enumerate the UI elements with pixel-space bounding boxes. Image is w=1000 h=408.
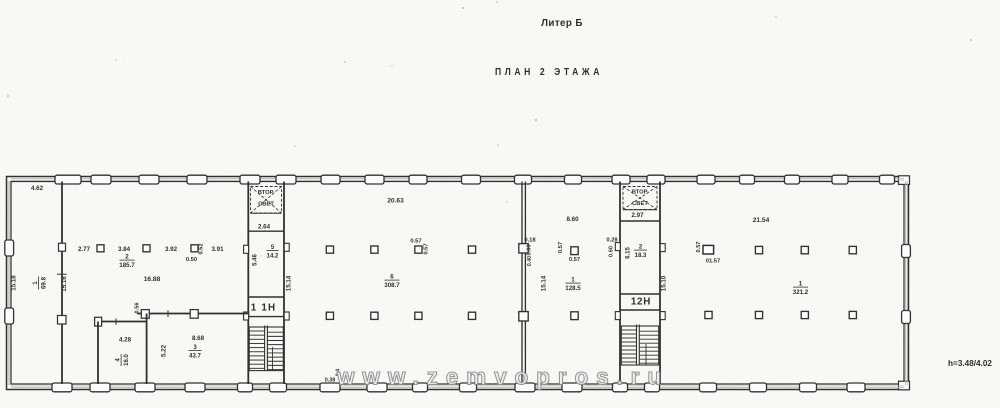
svg-text:0.57: 0.57 — [410, 239, 421, 245]
svg-text:16.88: 16.88 — [144, 276, 161, 283]
svg-text:69.8: 69.8 — [41, 276, 48, 289]
svg-text:8.68: 8.68 — [192, 335, 205, 342]
svg-text:308.7: 308.7 — [384, 282, 400, 289]
svg-text:0.56: 0.56 — [135, 303, 141, 314]
svg-text:2: 2 — [125, 254, 129, 261]
svg-text:0.50: 0.50 — [186, 257, 197, 263]
svg-text:1: 1 — [799, 281, 803, 288]
svg-text:15.16: 15.16 — [61, 276, 68, 292]
svg-text:2.64: 2.64 — [258, 224, 271, 231]
svg-text:1 1Н: 1 1Н — [251, 303, 277, 314]
svg-text:2.97: 2.97 — [631, 212, 644, 219]
svg-text:2.77: 2.77 — [78, 246, 91, 253]
svg-text:СВЕТ: СВЕТ — [258, 202, 274, 208]
svg-text:h=3.48/4.02: h=3.48/4.02 — [948, 359, 992, 368]
svg-text:www.zemvopros.ru: www.zemvopros.ru — [336, 364, 669, 390]
svg-text:15.18: 15.18 — [11, 275, 18, 291]
svg-text:0.28: 0.28 — [606, 238, 618, 244]
svg-text:4.28: 4.28 — [119, 337, 132, 344]
svg-text:ПЛАН 2 ЭТАЖА: ПЛАН 2 ЭТАЖА — [495, 67, 603, 78]
svg-text:0.18: 0.18 — [524, 238, 536, 244]
svg-text:0.57: 0.57 — [424, 243, 430, 254]
svg-text:128.5: 128.5 — [565, 285, 581, 292]
svg-text:0.52: 0.52 — [199, 243, 205, 254]
svg-text:8.60: 8.60 — [566, 216, 579, 223]
svg-text:ВТОР.: ВТОР. — [632, 190, 649, 196]
svg-text:18.3: 18.3 — [635, 253, 647, 259]
svg-text:0.38: 0.38 — [325, 378, 336, 384]
svg-text:0.60: 0.60 — [609, 246, 615, 257]
svg-text:4.62: 4.62 — [31, 185, 44, 192]
svg-text:21.54: 21.54 — [753, 217, 770, 224]
svg-text:0.57: 0.57 — [696, 242, 702, 253]
svg-text:3.91: 3.91 — [211, 246, 224, 253]
svg-text:15.14: 15.14 — [286, 275, 293, 291]
svg-text:3.92: 3.92 — [165, 246, 178, 253]
svg-text:6.15: 6.15 — [626, 247, 632, 259]
svg-text:321.2: 321.2 — [793, 289, 809, 296]
svg-text:1: 1 — [32, 281, 39, 285]
svg-text:3.84: 3.84 — [118, 246, 131, 253]
svg-text:20.63: 20.63 — [387, 198, 404, 205]
svg-text:ВТОР.: ВТОР. — [258, 190, 275, 196]
svg-text:0.66: 0.66 — [527, 245, 533, 256]
svg-text:5.46: 5.46 — [253, 254, 259, 266]
svg-text:185.7: 185.7 — [119, 262, 135, 269]
svg-text:14.2: 14.2 — [267, 254, 279, 260]
svg-text:5.22: 5.22 — [161, 344, 168, 357]
svg-text:15.14: 15.14 — [541, 275, 548, 291]
svg-text:Литер Б: Литер Б — [541, 18, 583, 29]
svg-text:6: 6 — [390, 274, 394, 281]
svg-text:43.7: 43.7 — [189, 354, 201, 360]
svg-text:0.57: 0.57 — [569, 257, 580, 263]
svg-text:15.10: 15.10 — [661, 275, 668, 291]
svg-text:0.57: 0.57 — [558, 242, 564, 253]
svg-text:0.40: 0.40 — [527, 256, 533, 266]
svg-text:СВЕТ: СВЕТ — [632, 201, 648, 207]
svg-text:16.0: 16.0 — [124, 354, 130, 366]
svg-text:1: 1 — [571, 277, 575, 284]
svg-text:01.57: 01.57 — [706, 259, 721, 265]
svg-text:12Н: 12Н — [631, 296, 651, 307]
